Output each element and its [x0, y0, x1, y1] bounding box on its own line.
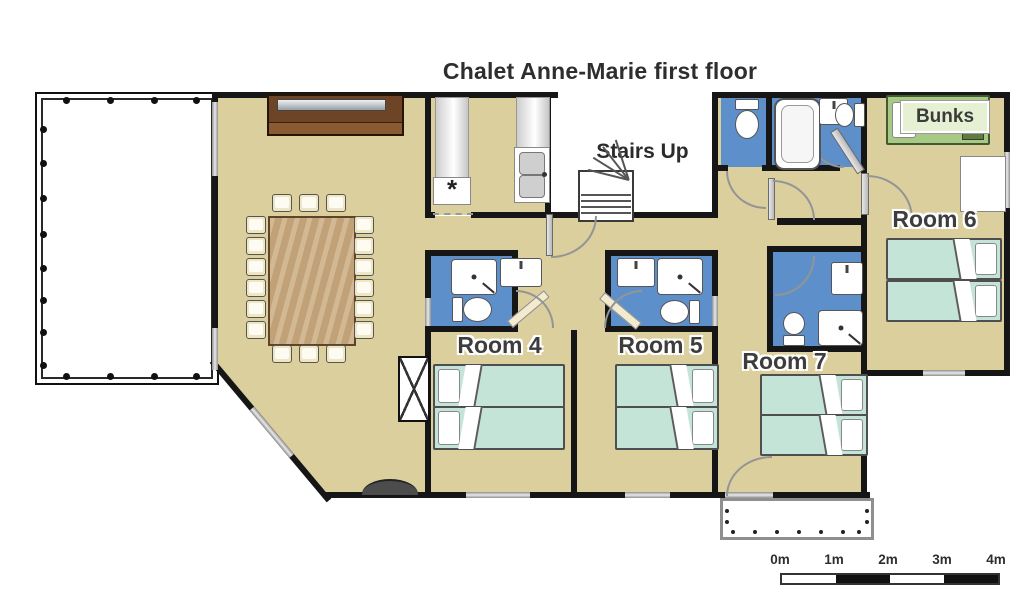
bathtub-icon — [774, 98, 821, 170]
main-balcony — [35, 92, 219, 385]
toilet-icon — [781, 312, 807, 346]
bed-icon — [760, 374, 868, 416]
bed-icon — [433, 406, 565, 450]
chair-icon — [299, 194, 319, 212]
scale-label: 1m — [824, 552, 844, 567]
sink-icon — [831, 262, 863, 295]
wall-segment — [1004, 92, 1010, 376]
scale-bar-segments — [780, 573, 1000, 585]
wall-segment — [425, 250, 518, 256]
sink-icon — [617, 258, 655, 287]
kitchen-sink-icon — [514, 147, 550, 203]
window — [712, 296, 718, 326]
toilet-icon — [660, 298, 700, 326]
room6-label: Room 6 — [872, 206, 997, 233]
wall-segment — [425, 92, 431, 218]
bed-icon — [886, 238, 1002, 280]
scale-bar: 0m 1m 2m 3m 4m — [770, 552, 1020, 588]
shower-icon — [818, 310, 863, 346]
stairs-icon — [578, 170, 634, 222]
wall-segment — [630, 212, 718, 218]
window — [425, 298, 431, 326]
room7-label: Room 7 — [722, 348, 847, 375]
floorplan-canvas: Chalet Anne-Marie first floor — [0, 0, 1024, 597]
sideboard-icon — [267, 94, 404, 136]
kitchen-counter — [435, 97, 469, 181]
kitchen-counter — [516, 97, 550, 151]
bed-icon — [886, 280, 1002, 322]
scale-label: 0m — [770, 552, 790, 567]
bed-icon — [433, 364, 565, 408]
sink-icon — [500, 258, 542, 287]
wall-segment — [767, 246, 773, 352]
toilet-icon — [733, 99, 761, 139]
shower-icon — [657, 258, 703, 295]
bed-icon — [615, 406, 719, 450]
scale-label: 4m — [986, 552, 1006, 567]
chair-icon — [246, 300, 266, 318]
wall-segment — [608, 250, 715, 256]
toilet-icon — [835, 101, 865, 129]
chair-icon — [272, 345, 292, 363]
chair-icon — [326, 345, 346, 363]
window — [923, 370, 965, 376]
bunks-label: Bunks — [901, 101, 989, 133]
chair-icon — [326, 194, 346, 212]
wall-segment — [767, 246, 867, 252]
balcony-railing — [41, 98, 213, 379]
stairs-label: Stairs Up — [570, 140, 715, 164]
small-balcony — [720, 498, 874, 540]
scale-label: 2m — [878, 552, 898, 567]
chair-icon — [246, 321, 266, 339]
bed-icon — [760, 414, 868, 456]
wall-segment — [571, 330, 577, 498]
room4-label: Room 4 — [437, 332, 562, 359]
scale-label: 3m — [932, 552, 952, 567]
chair-icon — [246, 237, 266, 255]
window — [466, 492, 530, 498]
window — [212, 328, 218, 370]
bed-icon — [615, 364, 719, 408]
chair-icon — [246, 258, 266, 276]
chair-icon — [246, 279, 266, 297]
toilet-icon — [452, 295, 492, 324]
chair-icon — [354, 321, 374, 339]
room5-label: Room 5 — [598, 332, 723, 359]
chair-icon — [354, 216, 374, 234]
chair-icon — [354, 237, 374, 255]
chair-icon — [354, 300, 374, 318]
cupboard-icon — [398, 356, 430, 422]
chair-icon — [354, 258, 374, 276]
chair-icon — [299, 345, 319, 363]
plan-title: Chalet Anne-Marie first floor — [385, 58, 815, 85]
dining-table — [268, 216, 356, 346]
wardrobe-icon — [960, 156, 1006, 212]
window — [212, 102, 218, 176]
chair-icon — [354, 279, 374, 297]
window — [625, 492, 670, 498]
chair-icon — [246, 216, 266, 234]
wall-segment — [766, 92, 772, 169]
doorway-dashes — [433, 213, 473, 215]
shower-icon — [451, 259, 497, 295]
chair-icon — [272, 194, 292, 212]
freezer-icon: * — [433, 177, 471, 205]
